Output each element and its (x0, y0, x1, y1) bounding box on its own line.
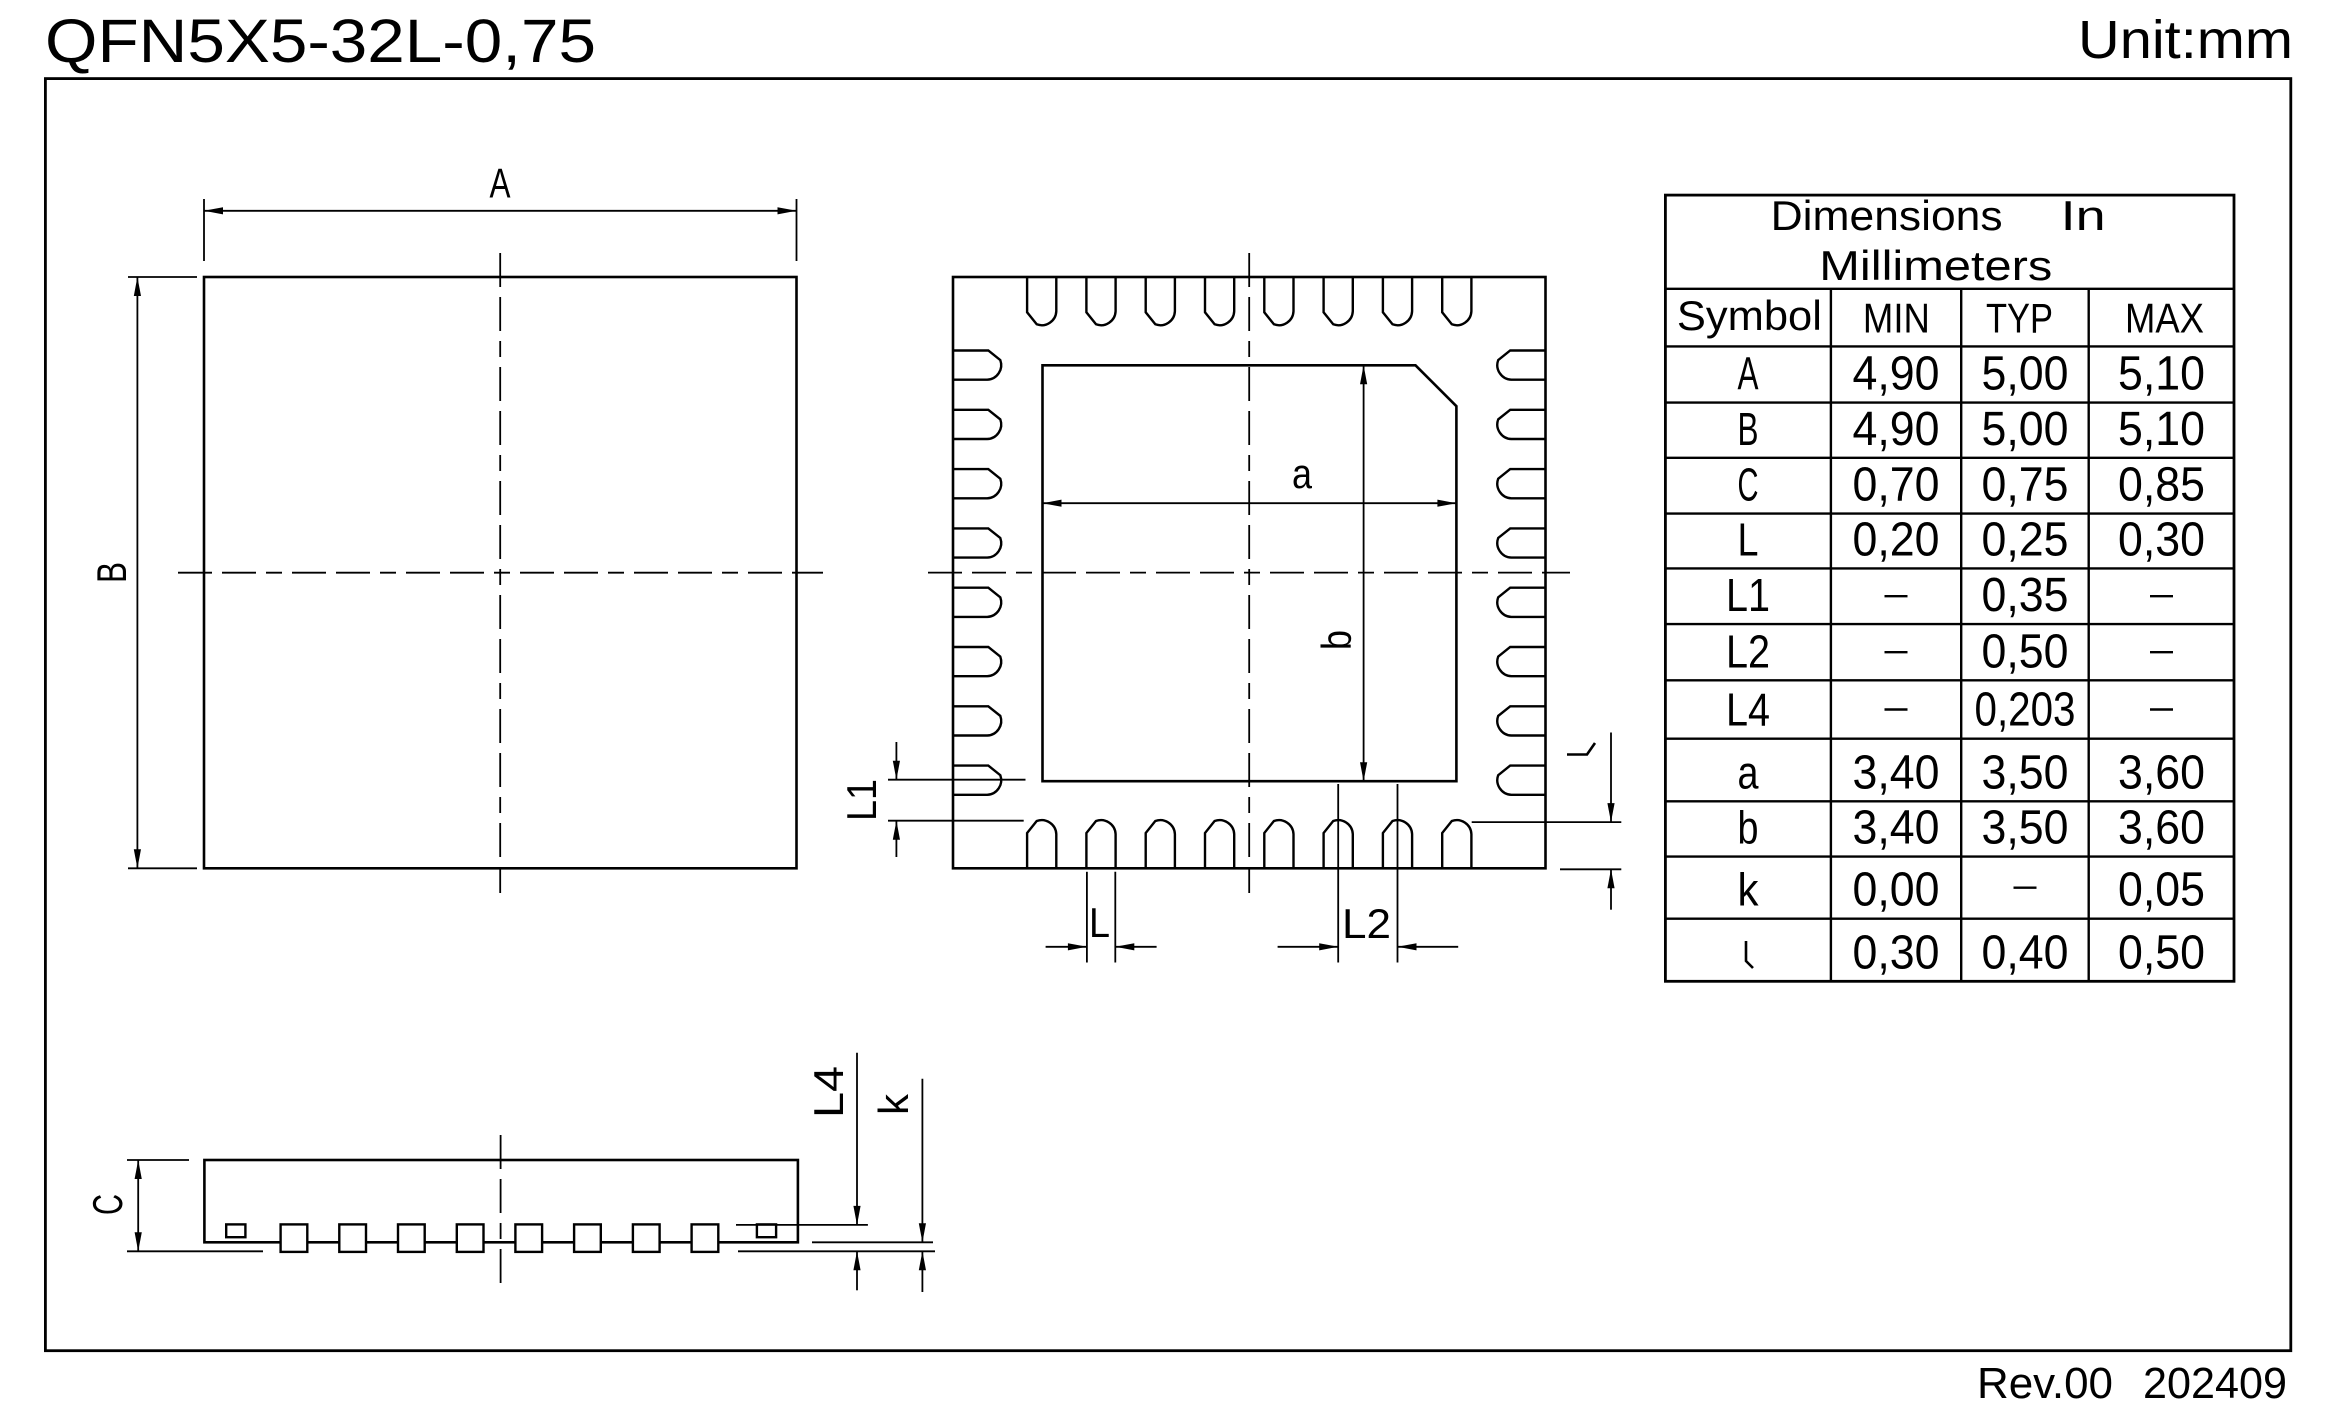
svg-text:a: a (1738, 746, 1759, 798)
svg-text:0,00: 0,00 (1853, 864, 1940, 917)
svg-text:5,10: 5,10 (2118, 348, 2205, 401)
svg-text:C: C (1738, 459, 1759, 511)
svg-text:In: In (2061, 192, 2106, 239)
svg-text:A: A (490, 160, 511, 207)
svg-text:a: a (1292, 450, 1313, 497)
svg-text:4,90: 4,90 (1853, 348, 1940, 401)
svg-text:Unit:mm: Unit:mm (2078, 10, 2293, 70)
svg-text:k: k (870, 1093, 917, 1115)
svg-text:3,50: 3,50 (1982, 746, 2069, 799)
svg-text:TYP: TYP (1986, 295, 2053, 342)
svg-text:0,203: 0,203 (1975, 684, 2076, 737)
svg-text:QFN5X5-32L-0,75: QFN5X5-32L-0,75 (45, 7, 596, 75)
svg-text:0,25: 0,25 (1982, 513, 2069, 566)
svg-text:B: B (88, 562, 135, 583)
svg-text:L2: L2 (1726, 625, 1770, 677)
svg-text:5,00: 5,00 (1982, 348, 2069, 401)
svg-text:0,85: 0,85 (2118, 459, 2205, 512)
svg-text:0,50: 0,50 (2118, 926, 2205, 979)
svg-text:202409: 202409 (2143, 1359, 2287, 1408)
svg-text:3,40: 3,40 (1853, 746, 1940, 799)
svg-text:4,90: 4,90 (1853, 403, 1940, 456)
svg-text:3,50: 3,50 (1982, 802, 2069, 855)
svg-text:L4: L4 (805, 1066, 852, 1118)
svg-text:3,60: 3,60 (2118, 802, 2205, 855)
svg-text:L4: L4 (1726, 684, 1770, 736)
svg-text:L1: L1 (1726, 569, 1770, 621)
svg-text:b: b (1738, 802, 1759, 854)
svg-text:5,10: 5,10 (2118, 403, 2205, 456)
svg-text:L1: L1 (838, 779, 885, 821)
svg-text:3,60: 3,60 (2118, 746, 2205, 799)
svg-text:3,40: 3,40 (1853, 802, 1940, 855)
svg-text:MAX: MAX (2125, 295, 2204, 342)
svg-text:Millimeters: Millimeters (1819, 242, 2052, 289)
svg-text:k: k (1738, 864, 1760, 916)
svg-text:0,70: 0,70 (1853, 459, 1940, 512)
svg-text:5,00: 5,00 (1982, 403, 2069, 456)
svg-text:0,30: 0,30 (1853, 926, 1940, 979)
svg-text:0,40: 0,40 (1982, 926, 2069, 979)
svg-text:L2: L2 (1342, 900, 1391, 947)
svg-text:L: L (1089, 899, 1110, 946)
svg-text:0,35: 0,35 (1982, 569, 2069, 622)
svg-text:Dimensions: Dimensions (1771, 192, 2003, 239)
svg-text:0,30: 0,30 (2118, 513, 2205, 566)
svg-text:C: C (84, 1194, 131, 1215)
svg-text:A: A (1738, 348, 1759, 400)
svg-text:0,05: 0,05 (2118, 864, 2205, 917)
svg-text:Rev.00: Rev.00 (1977, 1359, 2113, 1408)
svg-text:0,20: 0,20 (1853, 513, 1940, 566)
svg-text:Symbol: Symbol (1677, 292, 1822, 339)
svg-text:b: b (1313, 630, 1360, 650)
svg-text:0,75: 0,75 (1982, 459, 2069, 512)
svg-text:MIN: MIN (1863, 295, 1930, 342)
svg-text:0,50: 0,50 (1982, 625, 2069, 678)
svg-text:B: B (1738, 403, 1759, 455)
svg-text:L: L (1738, 513, 1759, 565)
